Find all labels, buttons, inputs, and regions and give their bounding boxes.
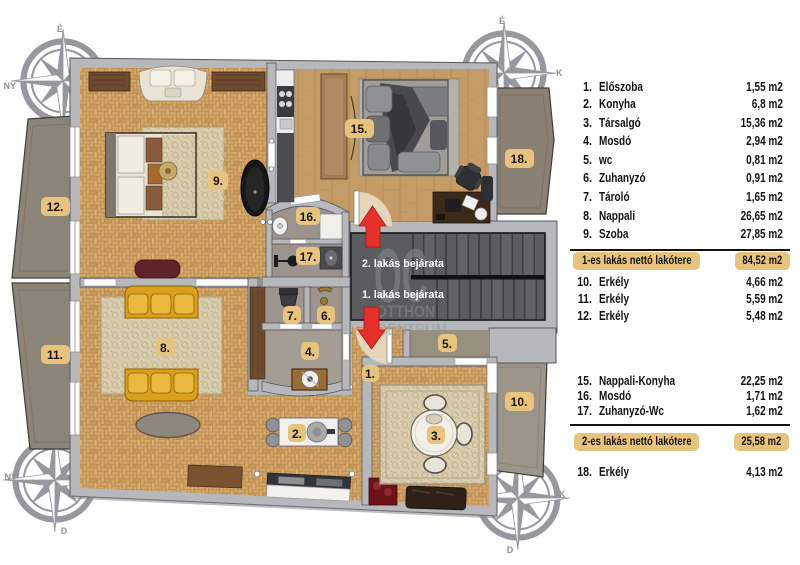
svg-text:12.: 12. — [47, 200, 64, 214]
svg-text:D: D — [61, 526, 68, 536]
svg-text:2.: 2. — [292, 427, 302, 441]
svg-text:11.: 11. — [47, 348, 63, 362]
svg-text:K: K — [556, 68, 563, 78]
svg-text:1. lakás bejárata: 1. lakás bejárata — [362, 289, 444, 301]
svg-text:2. lakás bejárata: 2. lakás bejárata — [362, 258, 444, 270]
svg-text:17.: 17. — [300, 250, 317, 264]
svg-text:D: D — [507, 545, 514, 555]
svg-text:15.: 15. — [351, 122, 368, 136]
svg-text:7.: 7. — [287, 309, 297, 323]
svg-text:9.: 9. — [213, 174, 223, 188]
svg-text:NY: NY — [4, 472, 17, 482]
svg-text:5.: 5. — [442, 337, 452, 351]
svg-text:K: K — [559, 489, 566, 499]
svg-text:3.: 3. — [431, 429, 441, 443]
svg-text:16.: 16. — [300, 210, 317, 224]
svg-text:NY: NY — [3, 81, 16, 91]
svg-text:1.: 1. — [365, 367, 375, 381]
svg-text:8.: 8. — [160, 341, 170, 355]
svg-text:CENTRUM: CENTRUM — [377, 321, 447, 339]
svg-text:18.: 18. — [511, 152, 528, 166]
svg-text:6.: 6. — [321, 309, 331, 323]
svg-text:É: É — [499, 16, 505, 26]
svg-text:10.: 10. — [511, 395, 528, 409]
svg-text:É: É — [57, 24, 63, 34]
svg-text:OTTHON: OTTHON — [376, 303, 435, 321]
svg-text:4.: 4. — [305, 345, 315, 359]
